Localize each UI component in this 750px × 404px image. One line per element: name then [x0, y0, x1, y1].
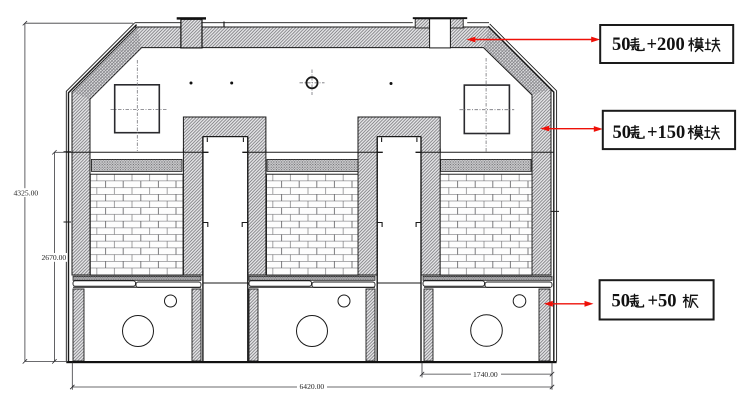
svg-text:+150: +150: [647, 123, 685, 143]
svg-text:50: 50: [612, 35, 631, 55]
svg-text:50: 50: [612, 292, 631, 312]
svg-text:+50: +50: [648, 292, 677, 312]
svg-text:+200: +200: [647, 35, 685, 55]
svg-text:50: 50: [613, 123, 632, 143]
svg-text:6420.00: 6420.00: [300, 382, 325, 391]
svg-text:4325.00: 4325.00: [14, 188, 39, 197]
svg-text:2670.00: 2670.00: [42, 253, 67, 262]
svg-text:1740.00: 1740.00: [473, 370, 498, 379]
